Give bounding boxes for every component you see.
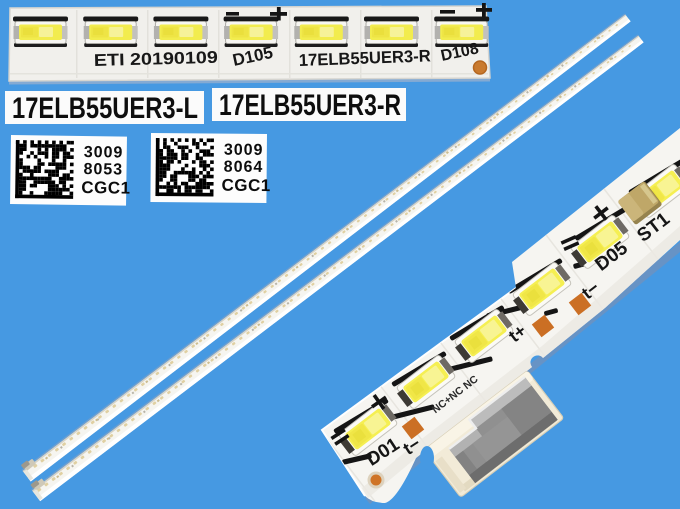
svg-text:17ELB55UER3-R: 17ELB55UER3-R <box>219 89 401 122</box>
svg-text:3009: 3009 <box>224 142 264 159</box>
svg-text:ETI 20190109: ETI 20190109 <box>94 48 218 70</box>
svg-text:CGC1: CGC1 <box>221 176 270 195</box>
svg-text:CGC1: CGC1 <box>81 178 130 198</box>
svg-text:8053: 8053 <box>83 161 123 179</box>
svg-text:8064: 8064 <box>224 159 264 176</box>
svg-text:17ELB55UER3-L: 17ELB55UER3-L <box>12 92 198 125</box>
svg-text:3009: 3009 <box>84 144 124 162</box>
